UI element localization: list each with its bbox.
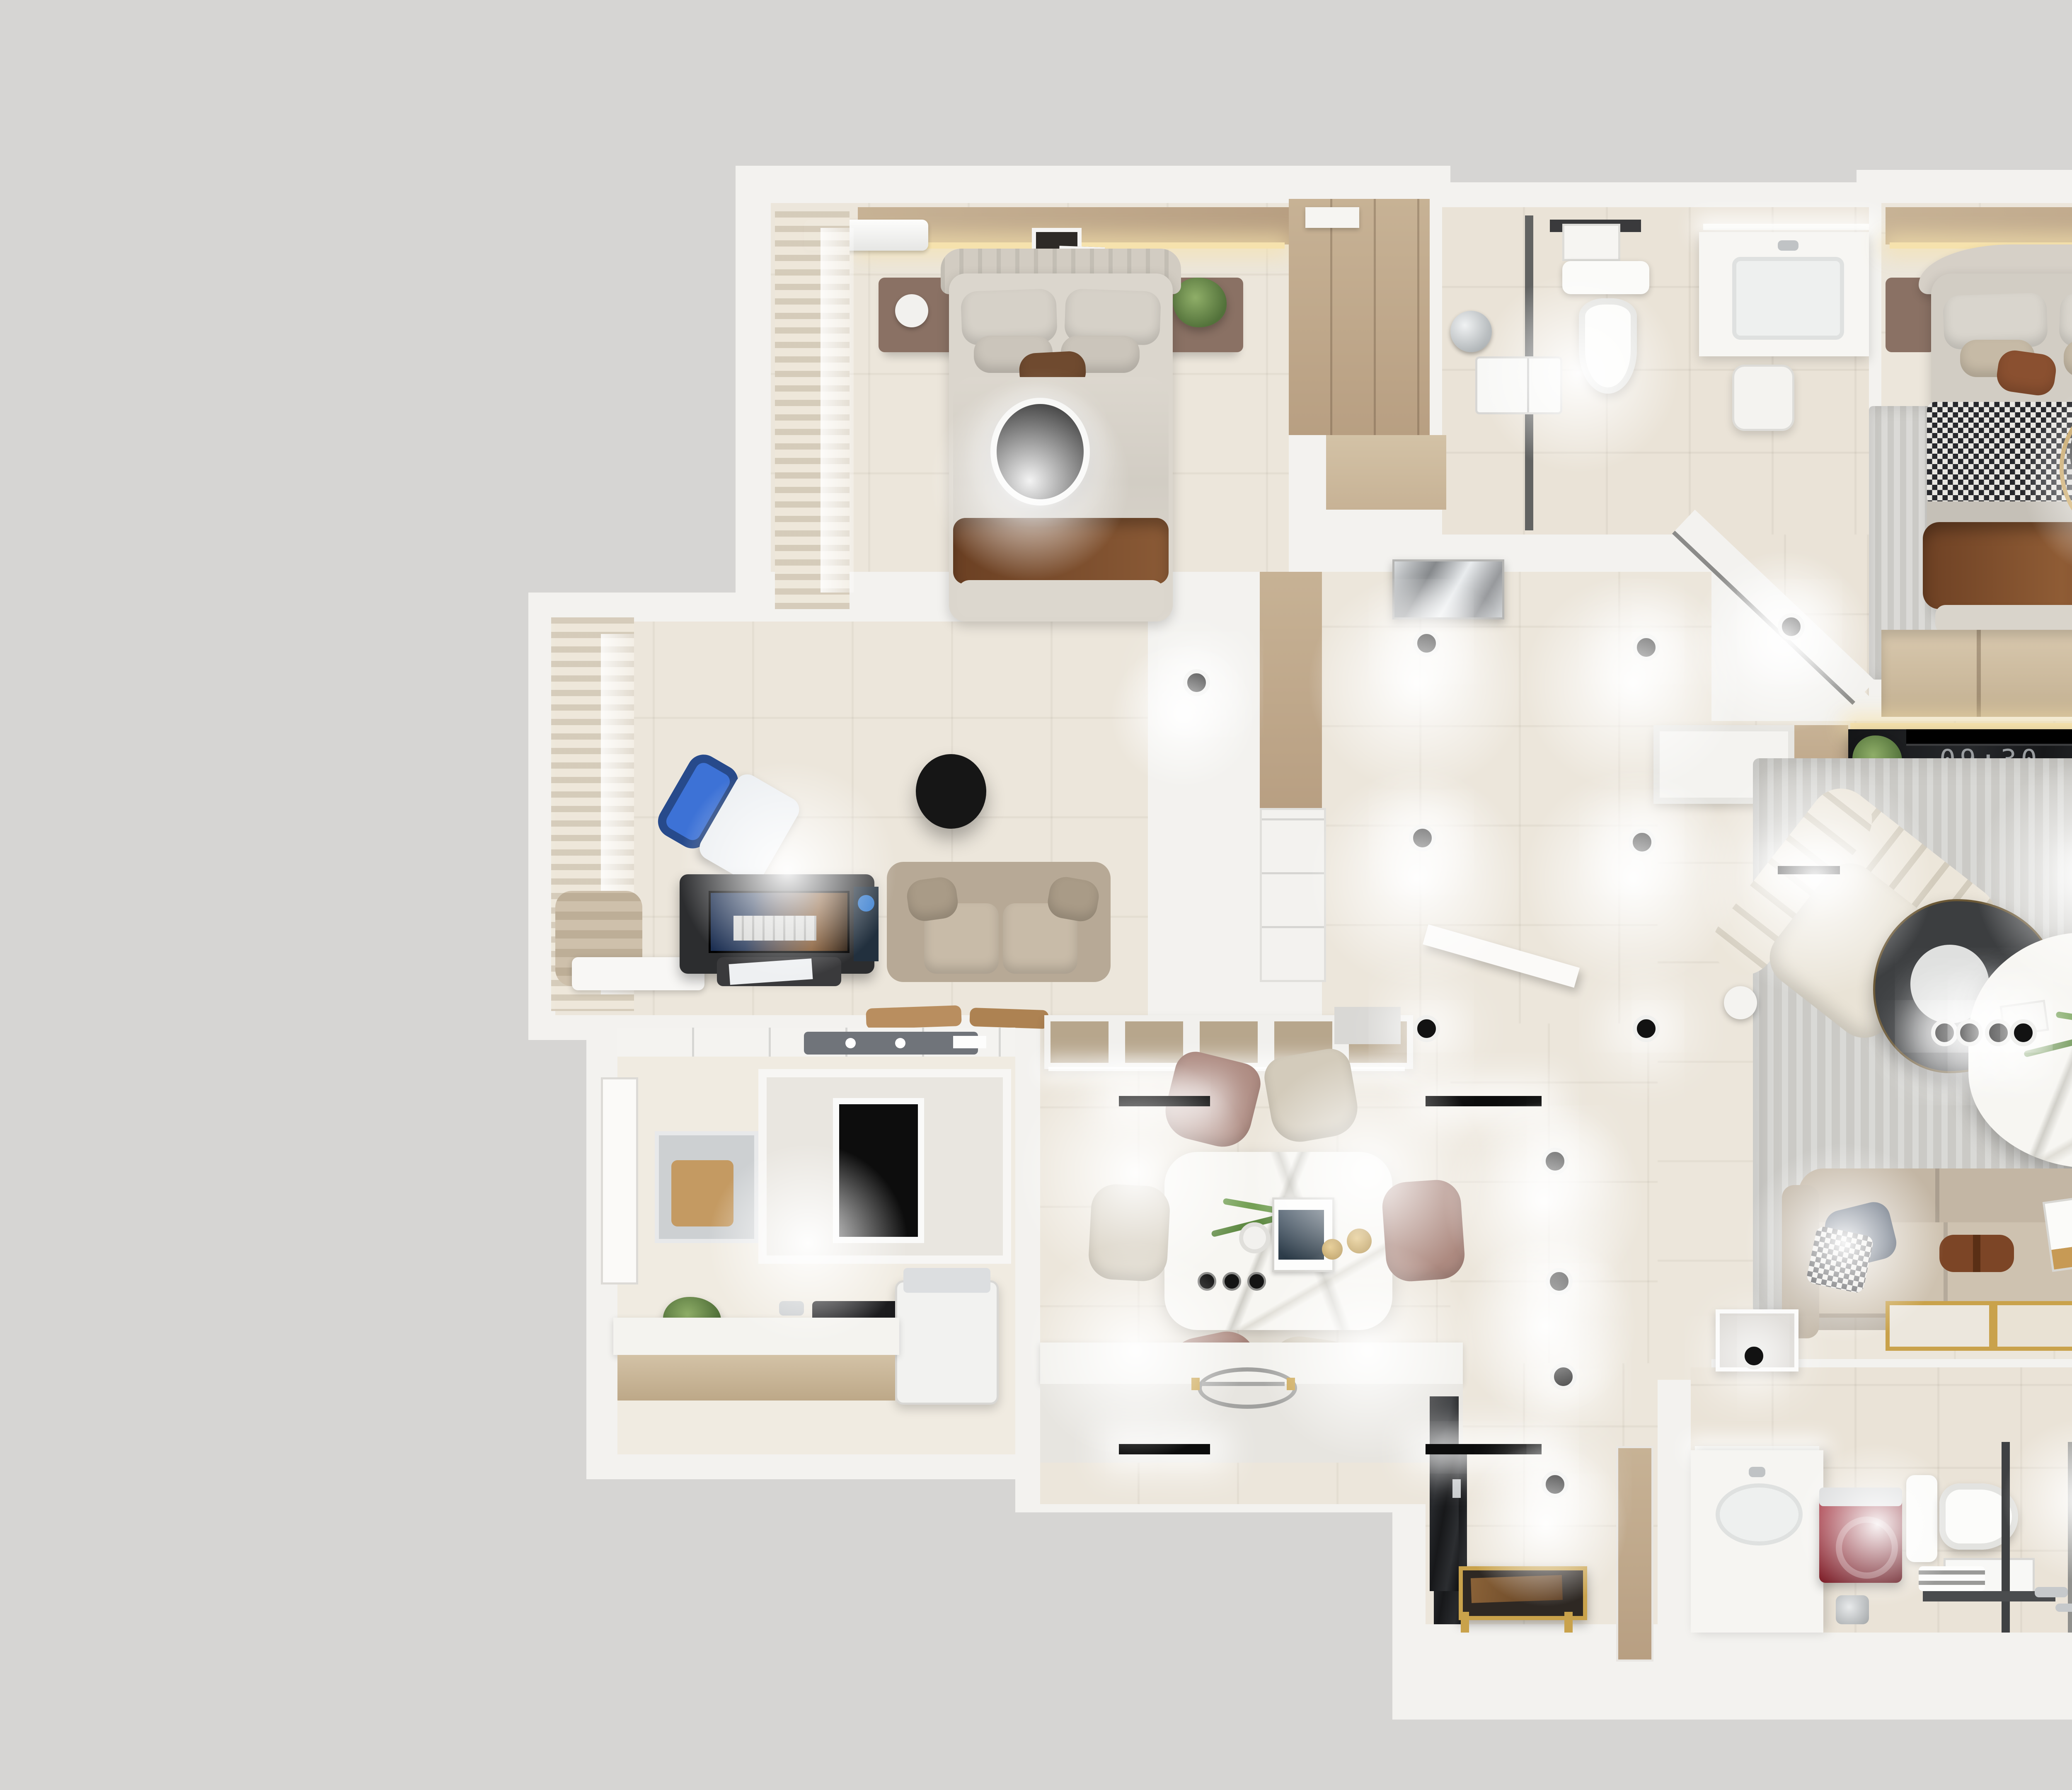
cutting-boards: [969, 1008, 1048, 1029]
light-pool: [1465, 259, 1693, 487]
downlight: [2010, 1019, 2037, 1046]
closet-wardrobe: [1289, 199, 1430, 435]
sheer-curtain: [821, 228, 854, 593]
stool: [1732, 365, 1794, 431]
wardrobe: [1881, 630, 2072, 717]
gold-framed-art: [1993, 1301, 2072, 1351]
drying-rack: [804, 1032, 978, 1055]
loveseat-sofa: [887, 862, 1111, 982]
light-pool: [663, 746, 912, 994]
rack-hook: [895, 1038, 905, 1048]
hall-cabinet: [1326, 435, 1446, 510]
tv: [1906, 729, 2072, 746]
rack-hook: [845, 1038, 856, 1048]
bench-leg: [1461, 1612, 1469, 1633]
downlight: [1985, 1019, 2012, 1046]
vanity-led: [1703, 224, 1869, 230]
cutting-boards: [866, 1005, 962, 1029]
light-pool: [1730, 1129, 1958, 1357]
light-pool: [1243, 1226, 1492, 1475]
light-pool: [916, 367, 1144, 595]
downlight: [1633, 1015, 1660, 1042]
downlight: [1956, 1019, 1983, 1046]
light-pool: [1293, 754, 1542, 1003]
breakfast-tray: [895, 294, 928, 327]
downlight: [1740, 1342, 1767, 1369]
washing-machine: [895, 1280, 999, 1405]
ceiling-lamp: [916, 754, 986, 829]
light-pool: [1784, 1432, 1970, 1618]
downlight: [1931, 1019, 1958, 1046]
tv-cove-light: [1850, 723, 2072, 729]
headboard-wall-panel: [1886, 207, 2072, 244]
closet-shelf-box: [1305, 207, 1359, 228]
light-pool: [694, 1129, 922, 1357]
light-pool: [1678, 539, 1886, 746]
downlight: [1413, 1015, 1440, 1042]
rack-bar: [953, 1036, 986, 1048]
vanity-sink: [1732, 257, 1844, 340]
faucet: [1778, 240, 1798, 251]
light-pool: [1011, 1226, 1260, 1475]
towel: [1562, 224, 1620, 261]
faucet: [1749, 1467, 1765, 1477]
light-pool: [1100, 632, 1266, 798]
laundry-door: [601, 1077, 638, 1284]
floor-plan-stage: 09:30: [0, 0, 2072, 1790]
counter-base: [617, 1355, 895, 1401]
faucet-set: [2055, 1604, 2072, 1612]
light-pool: [1680, 744, 1950, 1013]
light-pool: [1452, 1432, 1639, 1618]
